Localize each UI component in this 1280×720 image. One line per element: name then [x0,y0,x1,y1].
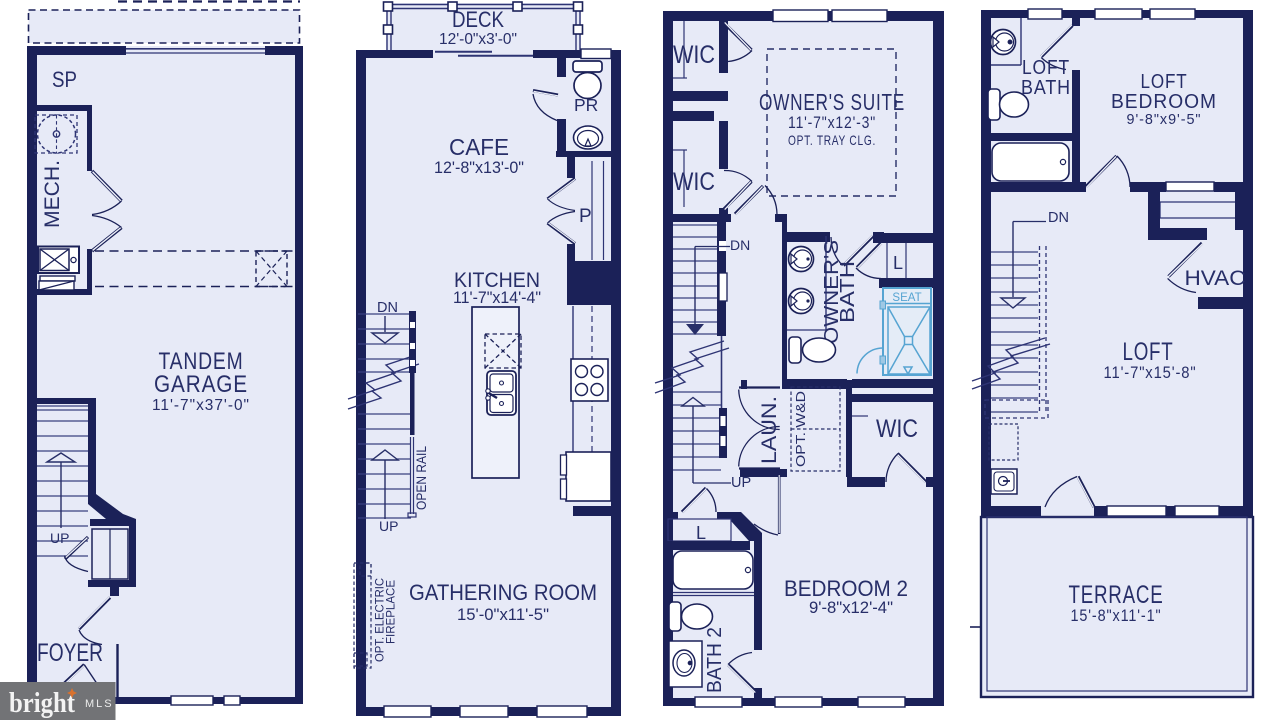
svg-text:BATH: BATH [837,261,859,323]
svg-text:BEDROOM: BEDROOM [1111,91,1217,113]
svg-text:UP: UP [731,475,751,491]
svg-text:OPT. W&D: OPT. W&D [793,391,808,467]
svg-text:9'-8"x9'-5": 9'-8"x9'-5" [1127,111,1202,128]
svg-text:P: P [579,206,592,227]
svg-text:DN: DN [377,300,398,316]
svg-text:WIC: WIC [673,168,715,196]
svg-text:15'-0"x11'-5": 15'-0"x11'-5" [457,606,549,624]
svg-text:11'-7"x15'-8": 11'-7"x15'-8" [1104,363,1197,382]
svg-text:12'-0"x3'-0": 12'-0"x3'-0" [439,31,517,48]
svg-text:OPEN RAIL: OPEN RAIL [414,446,429,510]
svg-text:11'-7"x14'-4": 11'-7"x14'-4" [453,289,541,307]
svg-text:LOFT: LOFT [1141,71,1188,93]
svg-text:12'-8"x13'-0": 12'-8"x13'-0" [434,159,524,177]
svg-text:FIREPLACE: FIREPLACE [384,580,398,644]
svg-text:SEAT: SEAT [892,292,921,304]
svg-text:SP: SP [52,67,77,92]
svg-text:HVAC: HVAC [1185,267,1246,290]
svg-text:bright: bright [9,688,76,719]
svg-text:15'-8"x11'-1": 15'-8"x11'-1" [1071,607,1162,625]
svg-text:CAFE: CAFE [449,134,509,160]
svg-text:DECK: DECK [452,7,504,32]
svg-text:L: L [893,253,903,273]
svg-text:BATH: BATH [1021,77,1071,99]
svg-text:9'-8"x12'-4": 9'-8"x12'-4" [809,599,893,617]
svg-text:OWNER'S SUITE: OWNER'S SUITE [759,89,905,115]
svg-text:MECH.: MECH. [41,160,64,228]
svg-text:BATH 2: BATH 2 [704,627,726,693]
svg-text:DN: DN [1048,210,1069,226]
svg-text:UP: UP [50,530,69,546]
svg-text:UP: UP [379,518,398,534]
svg-text:DN: DN [730,237,750,253]
svg-text:PR: PR [574,95,598,115]
svg-text:TERRACE: TERRACE [1069,581,1164,609]
svg-text:GARAGE: GARAGE [154,371,248,398]
svg-text:WIC: WIC [876,415,918,443]
svg-text:11'-7"x12'-3": 11'-7"x12'-3" [788,113,876,132]
svg-text:MLS: MLS [85,698,114,710]
svg-text:11'-7"x37'-0": 11'-7"x37'-0" [152,397,250,414]
svg-text:OPT. TRAY CLG.: OPT. TRAY CLG. [788,132,876,148]
svg-text:LAUN.: LAUN. [758,396,781,464]
svg-text:FOYER: FOYER [37,639,103,667]
svg-text:GATHERING ROOM: GATHERING ROOM [409,580,597,605]
svg-text:LOFT: LOFT [1022,57,1070,79]
svg-text:BEDROOM 2: BEDROOM 2 [784,576,908,601]
svg-text:LOFT: LOFT [1123,338,1174,366]
svg-text:WIC: WIC [673,41,715,69]
svg-text:L: L [696,523,706,543]
